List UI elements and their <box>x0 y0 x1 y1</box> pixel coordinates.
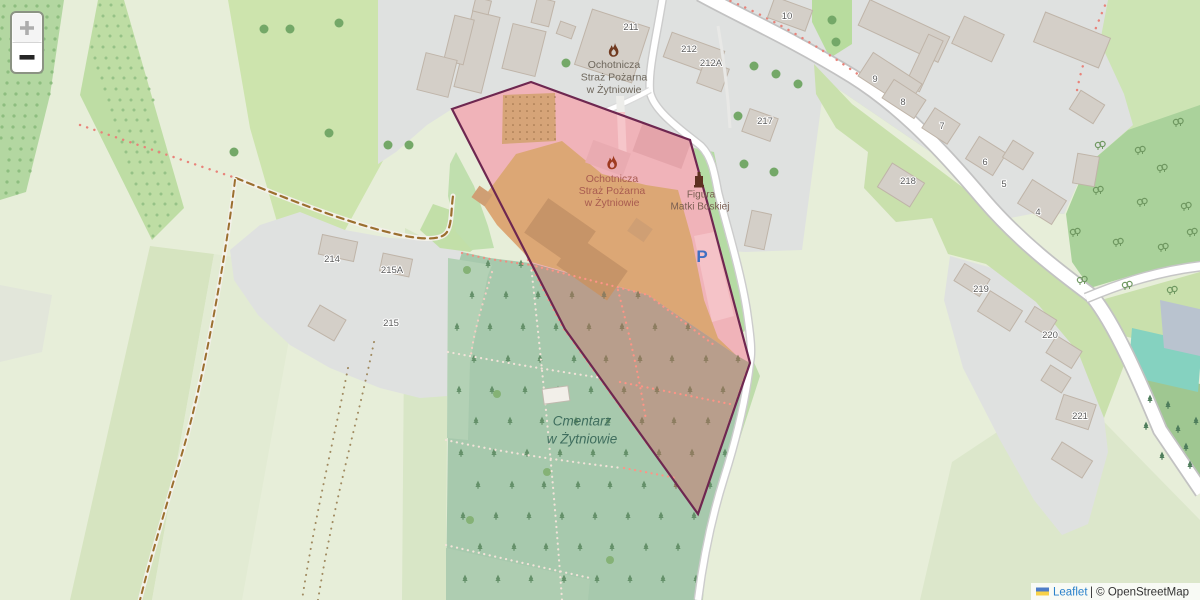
svg-text:| © OpenStreetMap: | © OpenStreetMap <box>1090 587 1189 599</box>
svg-text:218: 218 <box>900 176 916 187</box>
svg-text:w Żytniowie: w Żytniowie <box>547 432 618 447</box>
svg-text:P: P <box>696 247 707 266</box>
svg-text:9: 9 <box>872 74 877 85</box>
svg-text:212: 212 <box>681 44 697 55</box>
svg-text:w Żytniowie: w Żytniowie <box>586 83 642 96</box>
svg-text:5: 5 <box>1001 179 1006 190</box>
svg-text:220: 220 <box>1042 330 1058 341</box>
svg-text:212A: 212A <box>700 58 723 69</box>
svg-text:8: 8 <box>900 97 905 108</box>
svg-text:Cmentarz: Cmentarz <box>553 414 612 429</box>
svg-text:6: 6 <box>982 157 987 168</box>
svg-text:211: 211 <box>623 22 638 33</box>
svg-text:217: 217 <box>757 116 773 127</box>
svg-text:215: 215 <box>383 318 399 329</box>
svg-text:10: 10 <box>782 11 793 22</box>
svg-text:221: 221 <box>1072 411 1088 422</box>
svg-text:Ochotnicza: Ochotnicza <box>586 173 639 185</box>
svg-text:Leaflet: Leaflet <box>1053 587 1088 599</box>
svg-text:7: 7 <box>939 121 944 132</box>
svg-text:219: 219 <box>973 284 989 295</box>
svg-text:Figura: Figura <box>687 190 716 201</box>
svg-text:Matki Boskiej: Matki Boskiej <box>671 202 730 213</box>
svg-text:214: 214 <box>324 254 340 265</box>
svg-text:215A: 215A <box>381 265 404 276</box>
svg-text:w Żytniowie: w Żytniowie <box>584 196 640 209</box>
svg-text:Straż Pożarna: Straż Pożarna <box>581 72 648 84</box>
svg-text:4: 4 <box>1035 207 1040 218</box>
svg-text:Ochotnicza: Ochotnicza <box>588 59 641 71</box>
svg-text:Straż Pożarna: Straż Pożarna <box>579 185 646 197</box>
